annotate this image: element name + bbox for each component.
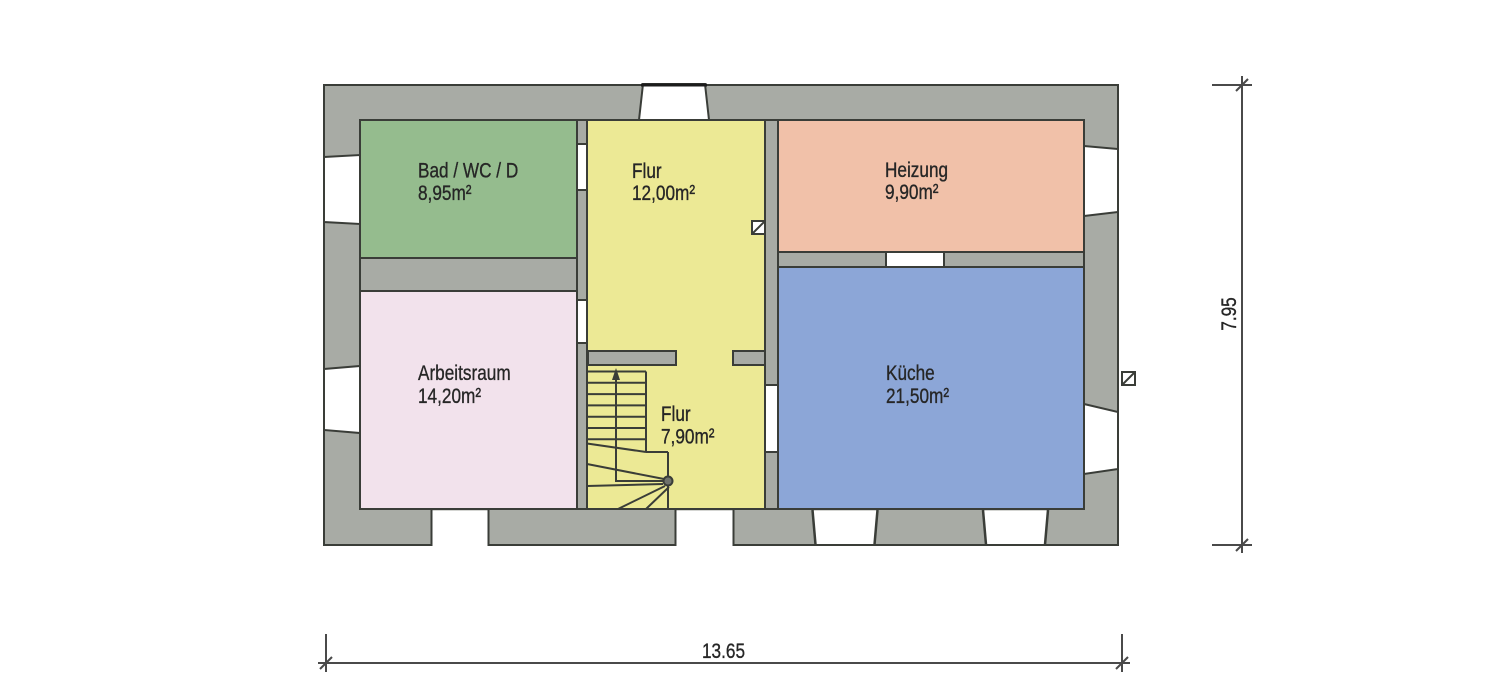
svg-text:8,95m²: 8,95m² xyxy=(418,181,472,205)
svg-text:Küche: Küche xyxy=(886,361,935,385)
svg-text:Flur: Flur xyxy=(632,159,662,183)
svg-text:Arbeitsraum: Arbeitsraum xyxy=(418,361,511,385)
svg-text:Heizung: Heizung xyxy=(885,158,948,182)
svg-text:9,90m²: 9,90m² xyxy=(885,180,939,204)
svg-text:7,90m²: 7,90m² xyxy=(661,425,715,449)
svg-text:7.95: 7.95 xyxy=(1217,297,1241,330)
svg-text:Flur: Flur xyxy=(661,402,691,426)
svg-text:13.65: 13.65 xyxy=(702,639,745,663)
svg-text:14,20m²: 14,20m² xyxy=(418,384,482,408)
svg-text:Bad / WC / D: Bad / WC / D xyxy=(418,159,518,183)
svg-text:21,50m²: 21,50m² xyxy=(886,384,950,408)
svg-text:12,00m²: 12,00m² xyxy=(632,181,696,205)
